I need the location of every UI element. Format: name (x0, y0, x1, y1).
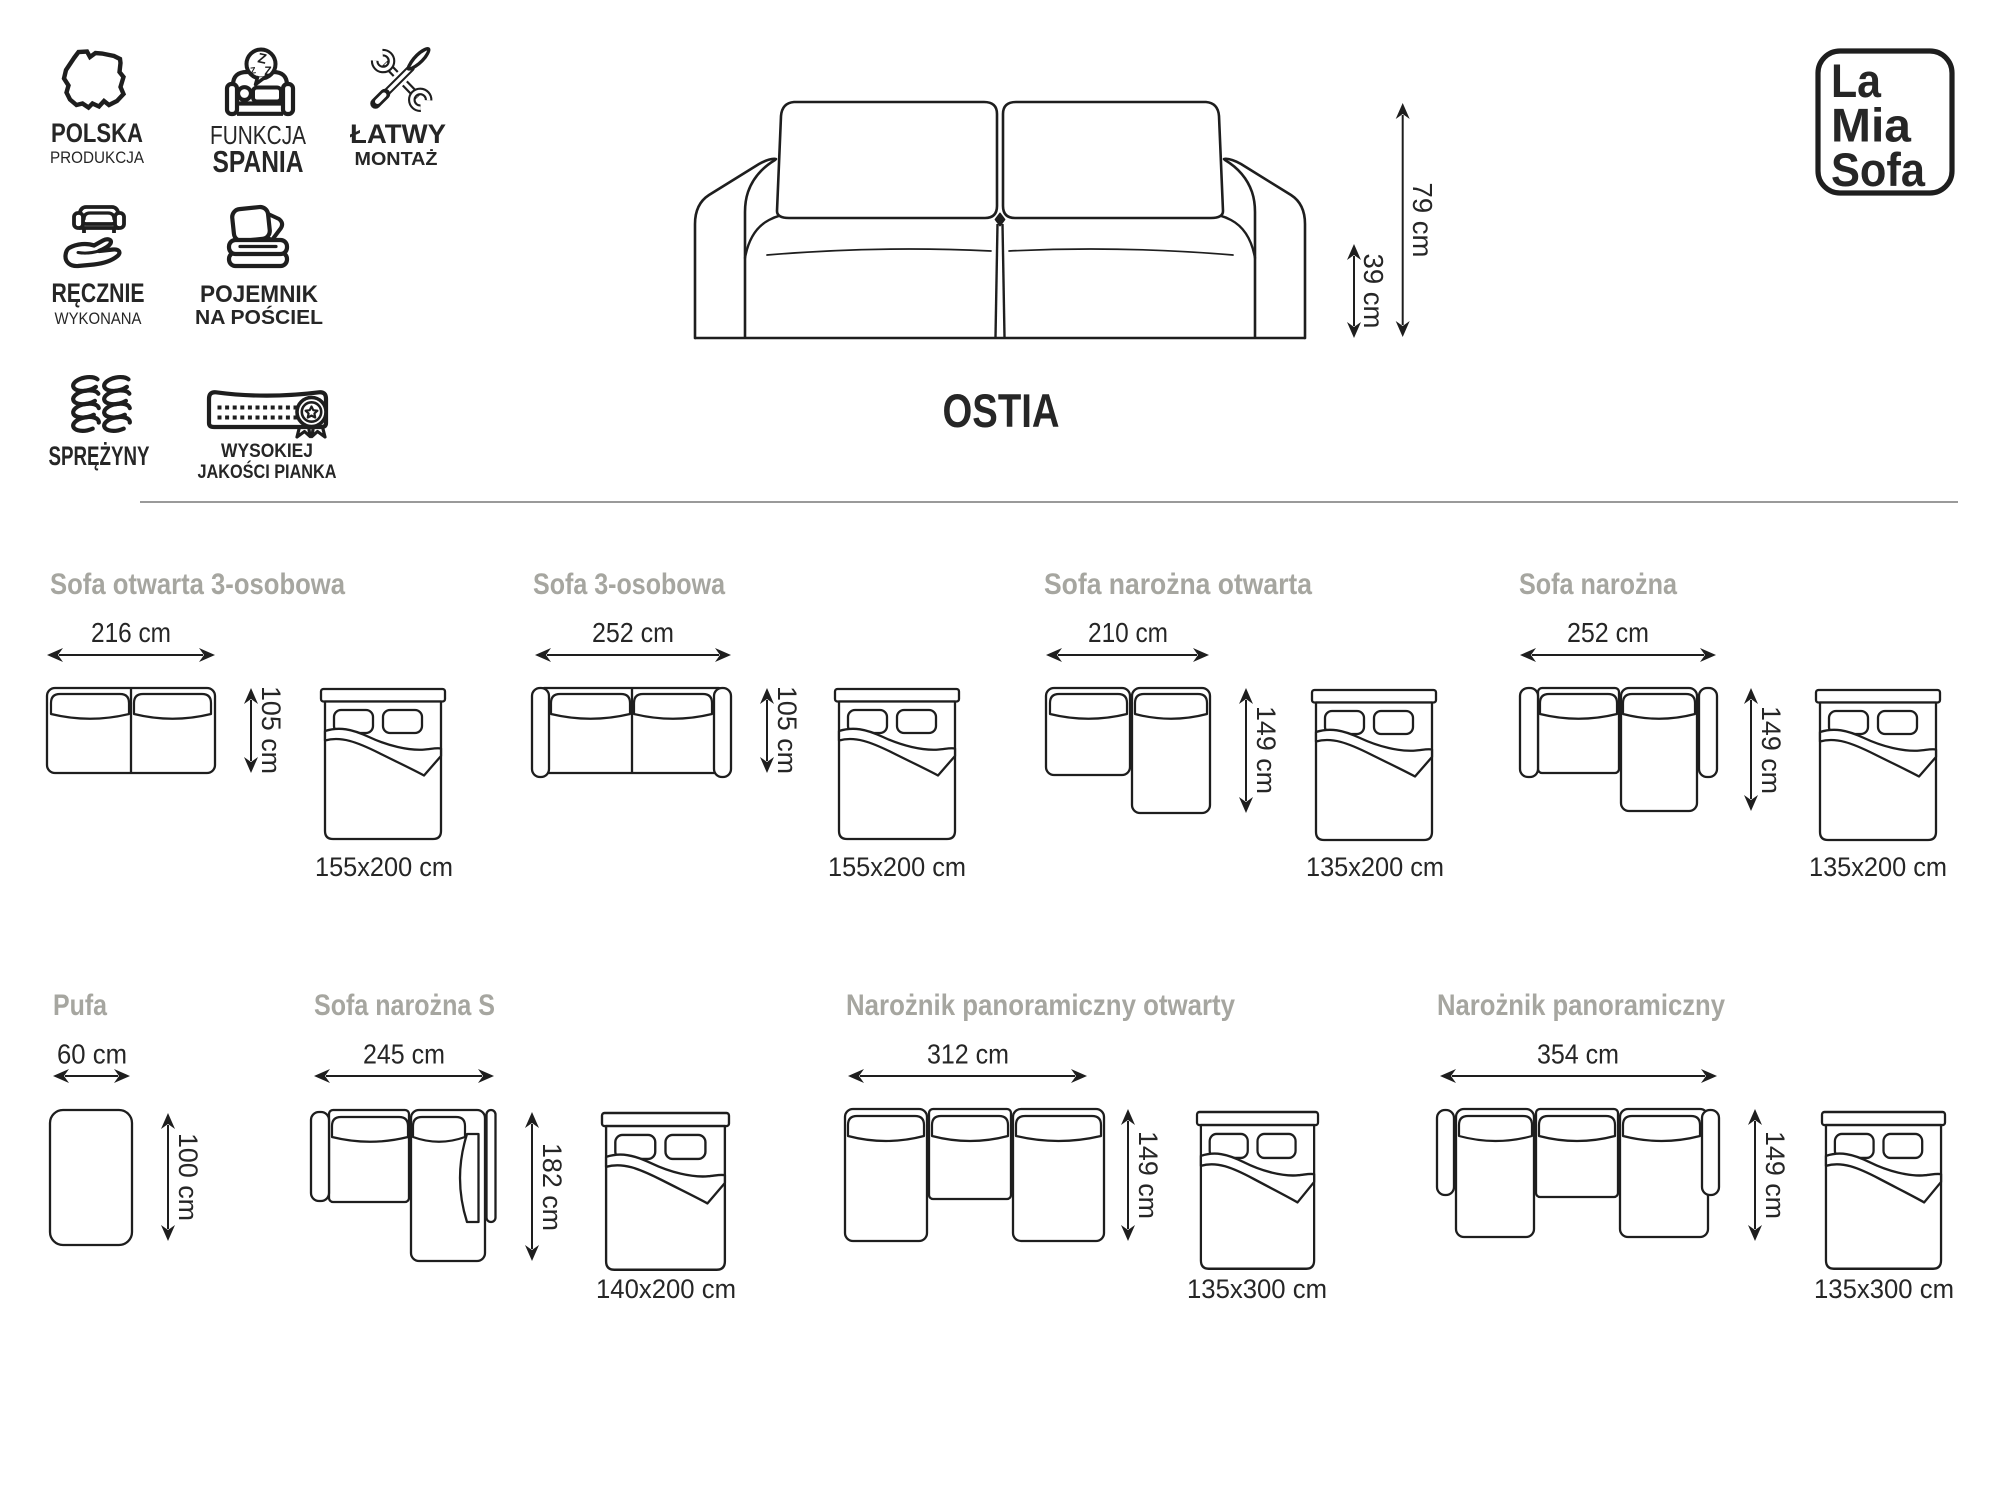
svg-text:PRODUKCJA: PRODUKCJA (50, 148, 145, 167)
svg-text:155x200 cm: 155x200 cm (315, 852, 453, 882)
svg-text:155x200 cm: 155x200 cm (828, 852, 966, 882)
svg-text:149 cm: 149 cm (1133, 1131, 1163, 1219)
svg-text:POJEMNIK: POJEMNIK (200, 281, 319, 308)
svg-text:JAKOŚCI PIANKA: JAKOŚCI PIANKA (198, 461, 337, 483)
svg-text:ŁATWY: ŁATWY (350, 119, 446, 149)
svg-text:Z: Z (264, 64, 271, 78)
svg-text:Pufa: Pufa (53, 989, 107, 1022)
svg-text:SPRĘŻYNY: SPRĘŻYNY (49, 441, 150, 471)
svg-text:210 cm: 210 cm (1088, 617, 1168, 648)
svg-text:149 cm: 149 cm (1756, 706, 1786, 794)
svg-text:Narożnik panoramiczny otwarty: Narożnik panoramiczny otwarty (846, 989, 1235, 1022)
svg-text:RĘCZNIE: RĘCZNIE (52, 278, 145, 308)
svg-text:Sofa narożna S: Sofa narożna S (314, 989, 495, 1022)
svg-text:Sofa narożna otwarta: Sofa narożna otwarta (1044, 568, 1312, 601)
svg-text:39 cm: 39 cm (1358, 254, 1389, 329)
svg-text:135x300 cm: 135x300 cm (1814, 1274, 1954, 1304)
svg-text:245 cm: 245 cm (363, 1039, 445, 1070)
svg-text:100 cm: 100 cm (173, 1133, 203, 1221)
svg-text:149 cm: 149 cm (1251, 706, 1281, 794)
svg-text:135x300 cm: 135x300 cm (1187, 1274, 1327, 1304)
svg-text:252 cm: 252 cm (592, 617, 674, 648)
svg-text:135x200 cm: 135x200 cm (1809, 852, 1947, 882)
svg-text:WYKONANA: WYKONANA (55, 309, 143, 328)
svg-text:312 cm: 312 cm (927, 1039, 1009, 1070)
svg-text:216 cm: 216 cm (91, 617, 171, 648)
svg-text:MONTAŻ: MONTAŻ (355, 149, 438, 169)
svg-text:182 cm: 182 cm (537, 1143, 567, 1231)
svg-text:Sofa otwarta 3-osobowa: Sofa otwarta 3-osobowa (50, 568, 345, 601)
svg-text:POLSKA: POLSKA (51, 118, 143, 148)
svg-text:354 cm: 354 cm (1537, 1039, 1619, 1070)
svg-text:105 cm: 105 cm (772, 686, 802, 774)
svg-text:Narożnik panoramiczny: Narożnik panoramiczny (1437, 989, 1725, 1022)
svg-text:Sofa narożna: Sofa narożna (1519, 568, 1677, 601)
svg-text:79 cm: 79 cm (1407, 183, 1438, 258)
svg-text:NA POŚCIEL: NA POŚCIEL (195, 305, 323, 329)
svg-text:Sofa 3-osobowa: Sofa 3-osobowa (533, 568, 725, 601)
svg-text:Sofa: Sofa (1831, 143, 1926, 196)
svg-text:OSTIA: OSTIA (943, 384, 1060, 437)
svg-text:WYSOKIEJ: WYSOKIEJ (221, 441, 313, 462)
svg-text:252 cm: 252 cm (1567, 617, 1649, 648)
svg-text:60 cm: 60 cm (57, 1039, 127, 1070)
svg-text:SPANIA: SPANIA (213, 144, 304, 179)
svg-text:149 cm: 149 cm (1760, 1131, 1790, 1219)
svg-text:140x200 cm: 140x200 cm (596, 1274, 736, 1304)
svg-text:135x200 cm: 135x200 cm (1306, 852, 1444, 882)
svg-text:105 cm: 105 cm (256, 686, 286, 774)
